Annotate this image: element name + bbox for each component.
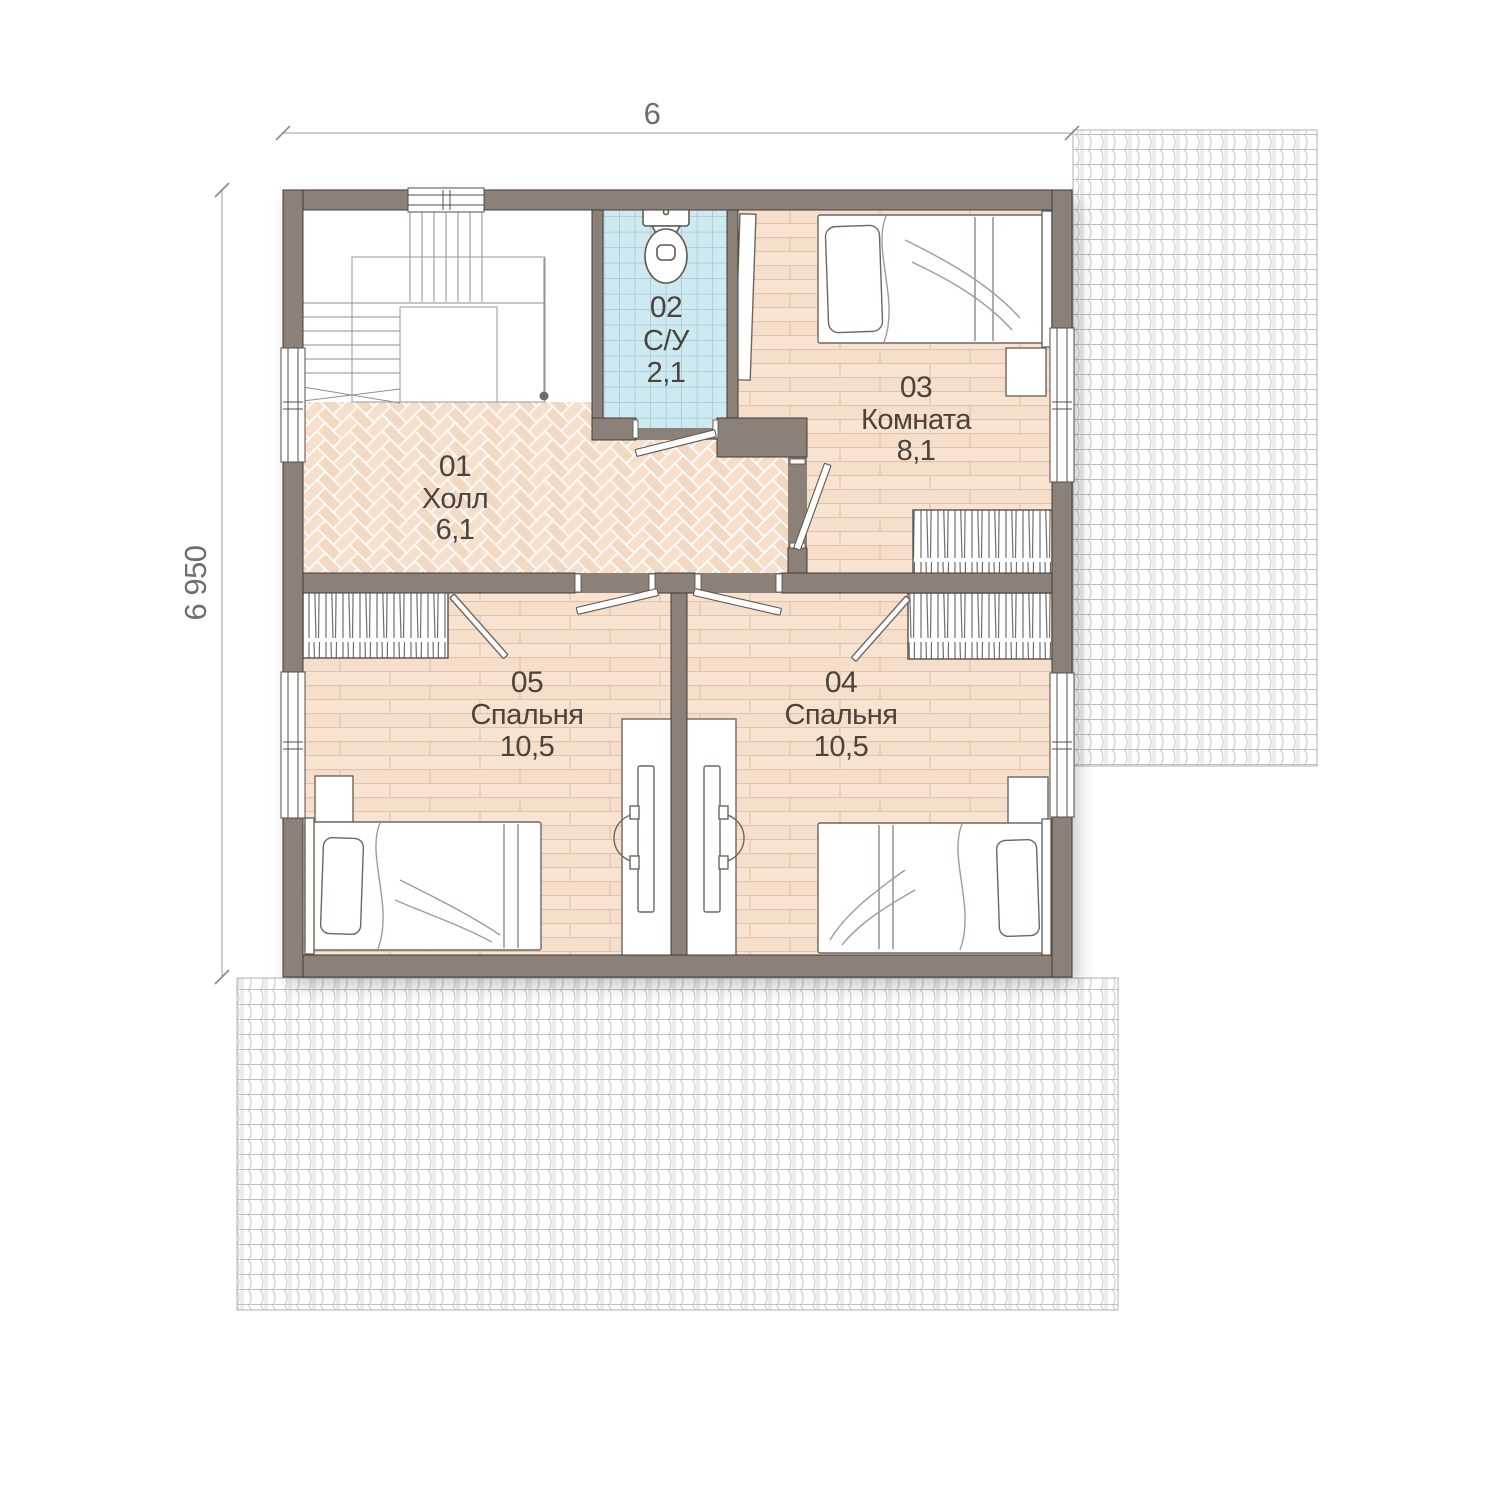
nightstand — [315, 776, 353, 823]
wall-bottom — [283, 955, 1072, 977]
room-05-name: Спальня — [470, 699, 583, 731]
bed-headboard — [305, 818, 314, 954]
tv-cabinet — [614, 719, 672, 957]
wall-hall-bottom-right — [782, 573, 1052, 593]
wardrobe — [303, 592, 448, 658]
roof-right — [1073, 130, 1317, 766]
roof-bottom — [237, 978, 1118, 1310]
wall-bath-bottom — [592, 418, 636, 440]
room-05-area: 10,5 — [500, 731, 554, 763]
nightstand — [1006, 348, 1046, 396]
stair-landing — [400, 307, 497, 402]
wall-top — [283, 190, 1072, 210]
wall-center — [671, 593, 687, 955]
wardrobe — [913, 510, 1052, 575]
room-02-number: 02 — [650, 291, 682, 324]
pillow — [825, 225, 883, 333]
wardrobe — [908, 593, 1052, 659]
wall-right — [1052, 190, 1072, 977]
pillow — [996, 839, 1039, 936]
wall-hall-bottom-center — [655, 573, 695, 593]
window-left-room05 — [281, 672, 305, 818]
room-01-area: 6,1 — [436, 514, 475, 546]
room-03-number: 03 — [900, 371, 932, 404]
bed-headboard — [1042, 819, 1051, 957]
wall-hall-bottom-left — [303, 573, 575, 593]
bed-headboard — [1042, 211, 1052, 347]
wall-left — [283, 190, 303, 977]
wall-vestibule-top — [717, 418, 807, 457]
room-01-name: Холл — [422, 483, 488, 515]
floor-plan: 01 Холл 6,1 02 С/У 2,1 03 Комната 8,1 04… — [0, 0, 1495, 1500]
room-04-name: Спальня — [784, 699, 897, 731]
wall-bath-left — [592, 210, 603, 428]
room-04-area: 10,5 — [814, 731, 868, 763]
stair-direction-dot — [540, 392, 549, 401]
window-right-room03 — [1050, 328, 1074, 482]
room-04-number: 04 — [825, 666, 857, 699]
room-02-area: 2,1 — [647, 357, 686, 389]
room-05-number: 05 — [511, 666, 543, 699]
room-01-number: 01 — [439, 450, 471, 483]
window-left-hall — [281, 348, 305, 462]
wall-bath-right — [727, 210, 738, 440]
nightstand — [1008, 777, 1048, 825]
pillow — [320, 837, 363, 934]
room-03-name: Комната — [861, 404, 972, 436]
dimension-height-label: 6 950 — [178, 545, 213, 620]
room-02-name: С/У — [643, 325, 690, 357]
dimension-width-label: 6 — [644, 96, 661, 131]
tv-cabinet — [686, 719, 744, 957]
floor-plan-svg: 01 Холл 6,1 02 С/У 2,1 03 Комната 8,1 04… — [0, 0, 1495, 1500]
room-03-area: 8,1 — [897, 435, 936, 467]
window-top-stairs — [408, 188, 484, 212]
toilet — [643, 205, 689, 283]
window-right-room04 — [1050, 673, 1074, 817]
